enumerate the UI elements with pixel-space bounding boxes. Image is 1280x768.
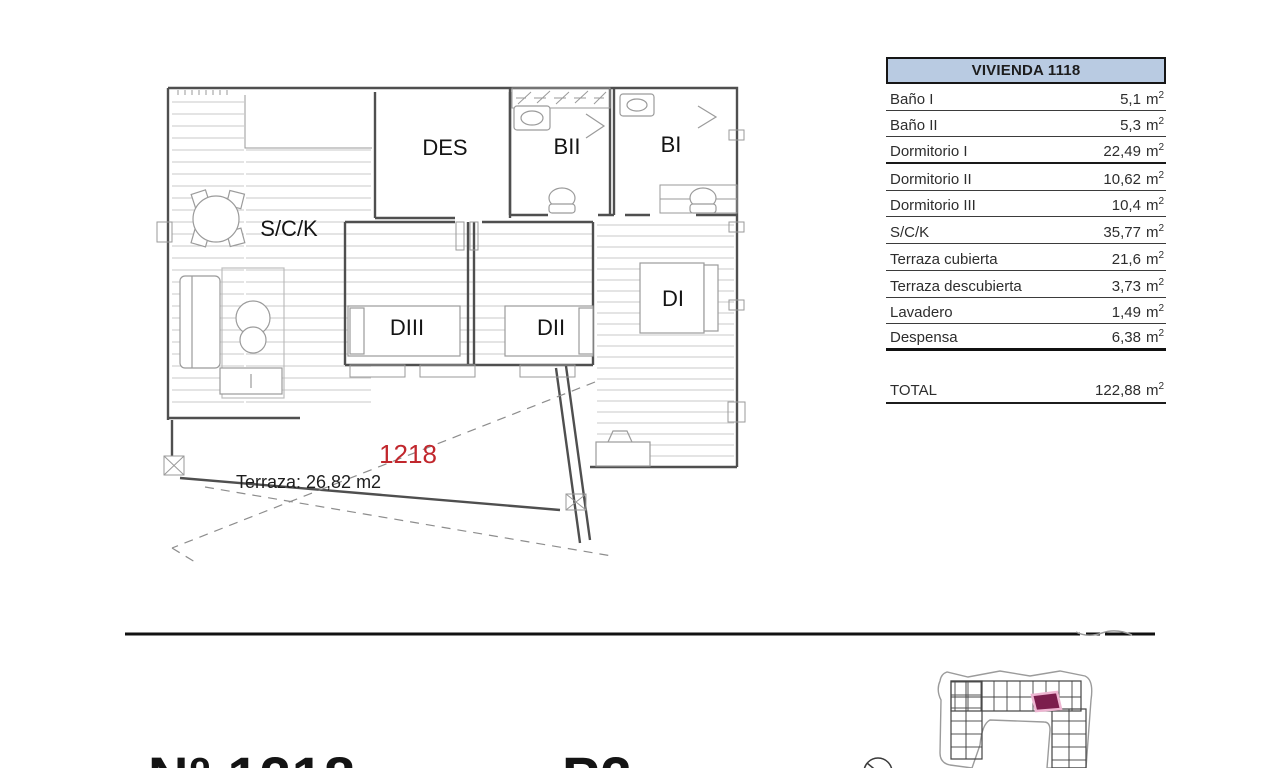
room-area: 6,38m2	[1112, 329, 1164, 346]
room-area: 5,1m2	[1120, 91, 1164, 108]
site-plan-highlighted-unit	[1032, 692, 1061, 711]
area-table: VIVIENDA 1118 Baño I 5,1m2 Baño II 5,3m2…	[886, 57, 1166, 404]
table-row: S/C/K 35,77m2	[886, 217, 1166, 244]
table-row: Despensa 6,38m2	[886, 324, 1166, 351]
area-table-title-text: VIVIENDA 1118	[972, 62, 1081, 79]
room-label-di: DI	[662, 286, 684, 311]
room-area: 35,77m2	[1103, 224, 1164, 241]
area-table-title: VIVIENDA 1118	[886, 57, 1166, 84]
table-row: Terraza cubierta 21,6m2	[886, 244, 1166, 271]
table-row: Baño II 5,3m2	[886, 111, 1166, 138]
total-label: TOTAL	[890, 382, 937, 399]
room-label-dii: DII	[537, 315, 565, 340]
site-plan	[938, 671, 1092, 768]
separator-line	[125, 631, 1155, 637]
room-name: Lavadero	[890, 304, 953, 321]
room-area: 10,4m2	[1112, 197, 1164, 214]
table-row: Dormitorio II 10,62m2	[886, 164, 1166, 191]
unit-number-label: 1218	[379, 439, 437, 469]
room-name: Terraza cubierta	[890, 251, 998, 268]
room-label-diii: DIII	[390, 315, 424, 340]
room-name: Despensa	[890, 329, 958, 346]
table-row: Baño I 5,1m2	[886, 84, 1166, 111]
room-name: Baño II	[890, 117, 938, 134]
terrace-area-label: Terraza: 26,82 m2	[236, 472, 381, 492]
room-name: Dormitorio II	[890, 171, 972, 188]
compass-icon	[864, 758, 892, 768]
total-area: 122,88m2	[1095, 382, 1164, 399]
room-area: 10,62m2	[1103, 171, 1164, 188]
room-area: 22,49m2	[1103, 143, 1164, 160]
room-name: Baño I	[890, 91, 933, 108]
table-row: Lavadero 1,49m2	[886, 298, 1166, 325]
footer-floor-number: P2	[562, 744, 633, 768]
table-row: Terraza descubierta 3,73m2	[886, 271, 1166, 298]
room-label-bi: BI	[661, 132, 682, 157]
room-label-bii: BII	[554, 134, 581, 159]
floor-plan-sheet: DES BII BI S/C/K DIII DII DI 1218 Terraz…	[0, 0, 1280, 768]
room-name: Dormitorio III	[890, 197, 976, 214]
room-area: 1,49m2	[1112, 304, 1164, 321]
table-row: Dormitorio III 10,4m2	[886, 191, 1166, 218]
room-area: 5,3m2	[1120, 117, 1164, 134]
room-label-sck: S/C/K	[260, 216, 318, 241]
table-row: Dormitorio I 22,49m2	[886, 137, 1166, 164]
room-label-des: DES	[422, 135, 467, 160]
room-name: Terraza descubierta	[890, 278, 1022, 295]
room-area: 3,73m2	[1112, 278, 1164, 295]
room-name: Dormitorio I	[890, 143, 968, 160]
room-area: 21,6m2	[1112, 251, 1164, 268]
table-total-row: TOTAL 122,88m2	[886, 377, 1166, 404]
room-name: S/C/K	[890, 224, 929, 241]
footer-unit-number: Nº 1218	[148, 744, 356, 768]
